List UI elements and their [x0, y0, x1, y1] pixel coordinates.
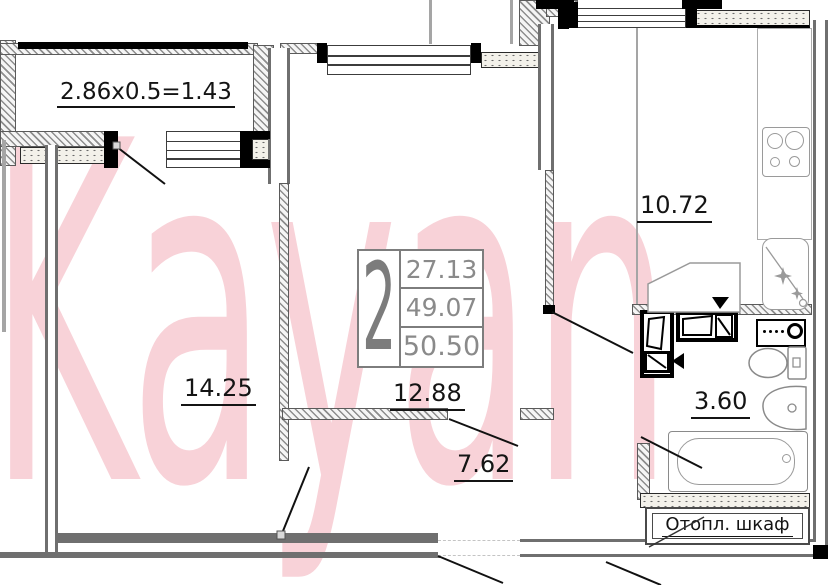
- window-cap: [252, 131, 270, 139]
- window-jamb: [317, 43, 327, 63]
- toilet-valve-icon: [793, 358, 800, 367]
- cooktop-icon: [762, 127, 810, 177]
- window-cap: [252, 160, 270, 168]
- cabinet-wall: [640, 493, 810, 508]
- heating-cabinet-label: Отопл. шкаф: [662, 515, 792, 538]
- window-jamb: [686, 6, 697, 28]
- wall-cap: [543, 305, 555, 314]
- building-edge-line: [2, 140, 6, 332]
- left-exterior-wall: [45, 145, 58, 557]
- balcony-area-label: 2.86x0.5=1.43: [57, 79, 235, 108]
- burner-icon: [767, 133, 783, 149]
- interior-wall: [538, 24, 554, 170]
- door-jamb: [104, 131, 118, 168]
- neighbor-outline-line: [429, 0, 432, 44]
- bedroom-bottom-wall: [520, 408, 554, 420]
- bathroom-left-wall: [637, 443, 650, 500]
- interior-wall: [268, 48, 290, 184]
- window-jamb: [558, 4, 569, 29]
- wall-cap: [682, 0, 722, 9]
- area-cells: 27.13 49.07 50.50: [399, 251, 482, 366]
- kitchen-zone-line: [636, 28, 638, 312]
- floor-plan: Kayan: [0, 0, 828, 585]
- window-jamb: [240, 131, 252, 168]
- neighbor-outline-line: [510, 0, 513, 44]
- burner-icon: [785, 131, 804, 150]
- building-bottom-line: [0, 552, 440, 558]
- washbasin-icon: [763, 386, 806, 429]
- window-jamb: [471, 43, 481, 63]
- cabinet-icon: [676, 311, 738, 342]
- exterior-wall-concrete: [694, 10, 810, 28]
- kitchen-sink-icon: [762, 238, 809, 310]
- bedroom-area-label: 12.88: [390, 380, 465, 411]
- right-exterior-wall: [813, 20, 828, 558]
- wall-cap: [813, 545, 828, 559]
- apartment-info-box: 2 27.13 49.07 50.50: [357, 249, 484, 368]
- exterior-wall-concrete: [481, 52, 545, 68]
- bathtub-icon: [668, 431, 808, 492]
- heating-cabinet-inner: Отопл. шкаф: [652, 513, 803, 539]
- living-area-value: 27.13: [401, 251, 482, 289]
- hallway-area-label: 7.62: [454, 451, 513, 482]
- cabinet-icon: [644, 351, 670, 373]
- drain-icon: [782, 454, 791, 463]
- entrance-door-opening: [438, 540, 520, 556]
- washing-machine-icon: [756, 319, 806, 347]
- balcony-top-wall-cap: [18, 42, 248, 49]
- kitchen-window: [568, 8, 686, 28]
- washbasin-drain-icon: [788, 404, 796, 412]
- toilet-icon: [749, 349, 787, 378]
- kitchen-area-label: 10.72: [637, 192, 712, 223]
- bathroom-area-label: 3.60: [691, 388, 750, 419]
- burner-icon: [789, 156, 800, 167]
- bedroom-window: [327, 45, 471, 75]
- balcony-block-window: [166, 131, 242, 168]
- burner-icon: [770, 157, 780, 167]
- area-without-balcony-value: 49.07: [401, 289, 482, 327]
- hall-partition-wall: [545, 170, 554, 310]
- room-count: 2: [362, 259, 396, 359]
- toilet-tank-icon: [788, 347, 806, 379]
- window-sill: [20, 147, 110, 164]
- bottom-wall: [55, 533, 438, 543]
- heating-cabinet: Отопл. шкаф: [645, 507, 810, 545]
- living-room-area-label: 14.25: [181, 375, 256, 406]
- total-area-value: 50.50: [401, 328, 482, 366]
- room-count-cell: 2: [359, 251, 399, 366]
